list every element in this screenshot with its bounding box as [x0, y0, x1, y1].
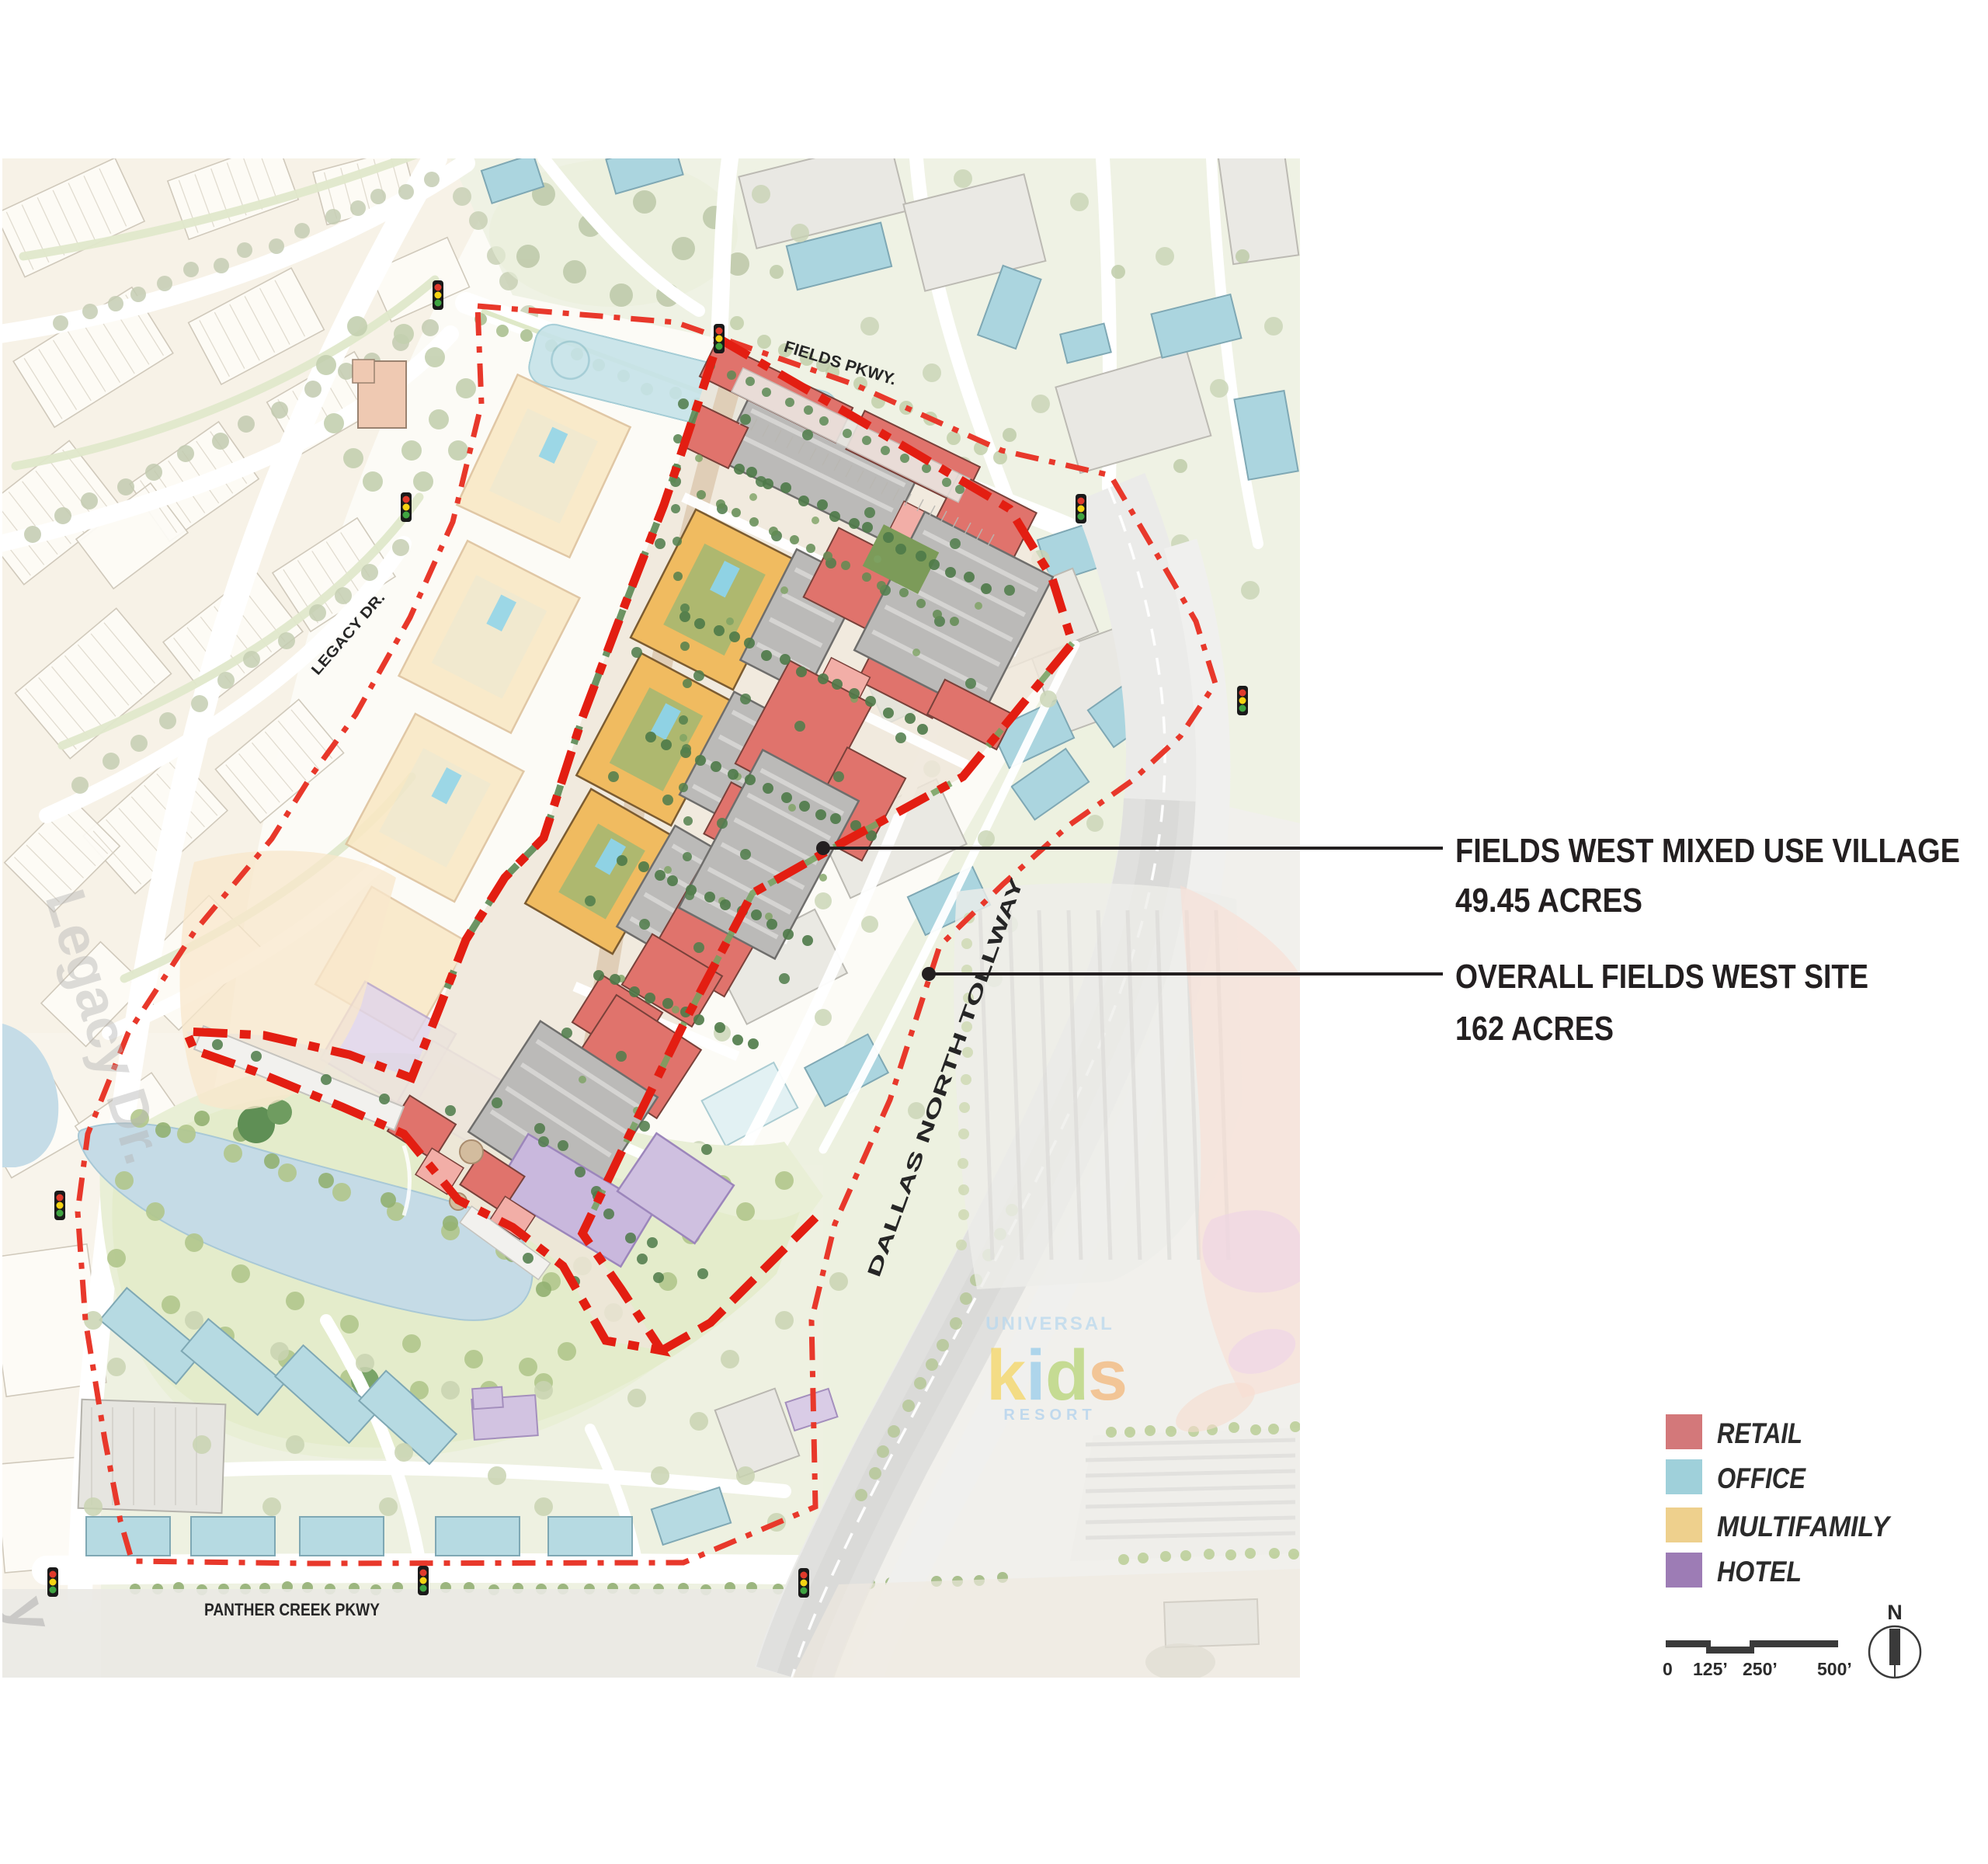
- svg-text:FIELDS WEST MIXED USE VILLAGE: FIELDS WEST MIXED USE VILLAGE: [1455, 832, 1960, 870]
- svg-text:49.45 ACRES: 49.45 ACRES: [1455, 882, 1642, 920]
- svg-text:250’: 250’: [1743, 1659, 1778, 1679]
- svg-text:MULTIFAMILY: MULTIFAMILY: [1717, 1511, 1892, 1542]
- svg-text:RETAIL: RETAIL: [1717, 1417, 1802, 1449]
- svg-text:OFFICE: OFFICE: [1717, 1462, 1806, 1494]
- svg-text:125’: 125’: [1693, 1659, 1728, 1679]
- svg-text:HOTEL: HOTEL: [1717, 1556, 1802, 1588]
- svg-text:i: i: [1026, 1336, 1046, 1415]
- svg-text:PANTHER CREEK PKWY: PANTHER CREEK PKWY: [204, 1600, 380, 1619]
- svg-text:s: s: [1088, 1336, 1128, 1415]
- svg-text:OVERALL FIELDS WEST SITE: OVERALL FIELDS WEST SITE: [1455, 958, 1868, 996]
- svg-text:N: N: [1887, 1601, 1903, 1624]
- svg-text:d: d: [1045, 1336, 1089, 1415]
- svg-text:0: 0: [1663, 1659, 1673, 1679]
- svg-text:RESORT: RESORT: [1003, 1407, 1096, 1424]
- svg-text:UNIVERSAL: UNIVERSAL: [985, 1313, 1114, 1334]
- svg-text:500’: 500’: [1817, 1659, 1852, 1679]
- svg-text:k: k: [986, 1336, 1027, 1415]
- svg-text:162 ACRES: 162 ACRES: [1455, 1010, 1614, 1048]
